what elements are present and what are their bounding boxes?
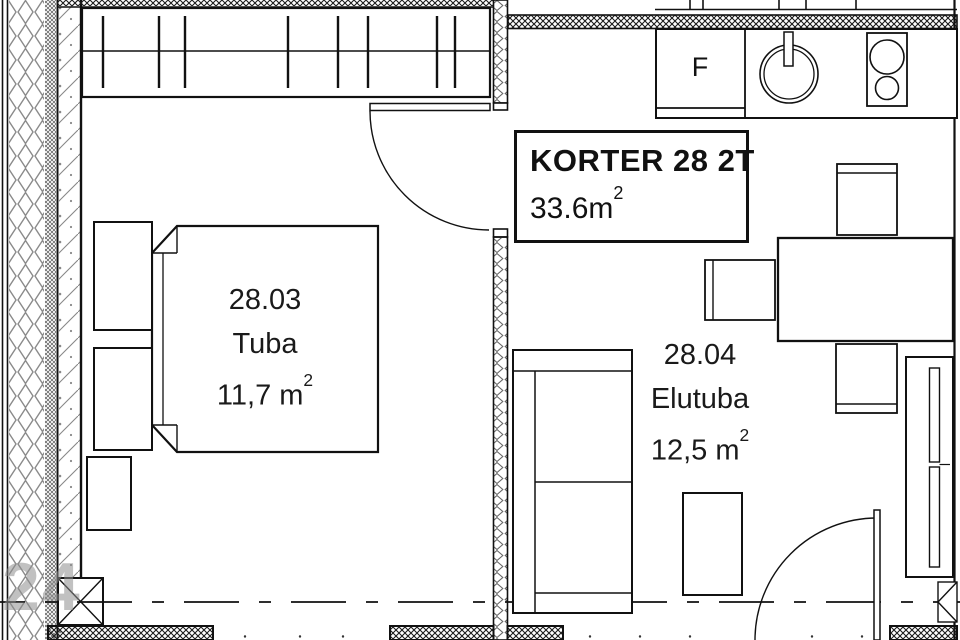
stove-icon <box>867 33 907 106</box>
left-exterior-wall <box>3 0 82 640</box>
chair-icon <box>705 260 775 320</box>
room-area: 11,7 m2 <box>145 366 385 418</box>
wardrobe-icon <box>82 8 490 97</box>
living-room-label: 28.04 Elutuba 12,5 m2 <box>580 333 820 473</box>
apartment-title: KORTER 28 2T <box>530 141 746 181</box>
door-leaf <box>874 510 880 640</box>
floor-plan-drawing <box>0 0 960 640</box>
room-name: Elutuba <box>580 377 820 421</box>
partition-wall <box>494 0 508 640</box>
watermark: 24 <box>2 548 82 626</box>
dining-table-icon <box>778 238 953 341</box>
door-leaf <box>370 104 490 111</box>
door-swing-icon <box>938 582 957 622</box>
apartment-area: 33.6m2 <box>530 181 746 229</box>
tv-bench-icon <box>906 357 953 577</box>
bedroom-label: 28.03 Tuba 11,7 m2 <box>145 278 385 418</box>
room-number: 28.04 <box>580 333 820 377</box>
balcony-door <box>755 510 880 640</box>
title-block: KORTER 28 2T 33.6m2 <box>514 130 749 243</box>
neighbor-unit-ticks <box>690 0 856 9</box>
door-swing-arc <box>370 111 489 230</box>
room-area: 12,5 m2 <box>580 421 820 473</box>
concrete-hatch <box>59 0 80 640</box>
nightstand-icon <box>94 222 152 330</box>
fridge-label: F <box>670 52 730 83</box>
chair-icon <box>836 344 897 413</box>
room-name: Tuba <box>145 322 385 366</box>
coffee-table-icon <box>683 493 742 595</box>
insulation-hatch <box>9 0 44 640</box>
door-swing-arc <box>755 518 877 640</box>
chair-icon <box>837 164 897 235</box>
membrane-hatch <box>45 0 56 640</box>
bedroom-door <box>370 104 490 231</box>
nightstand-icon <box>94 348 152 450</box>
floor-plan: KORTER 28 2T 33.6m2 28.03 Tuba 11,7 m2 2… <box>0 0 960 640</box>
room-number: 28.03 <box>145 278 385 322</box>
dresser-icon <box>87 457 131 530</box>
